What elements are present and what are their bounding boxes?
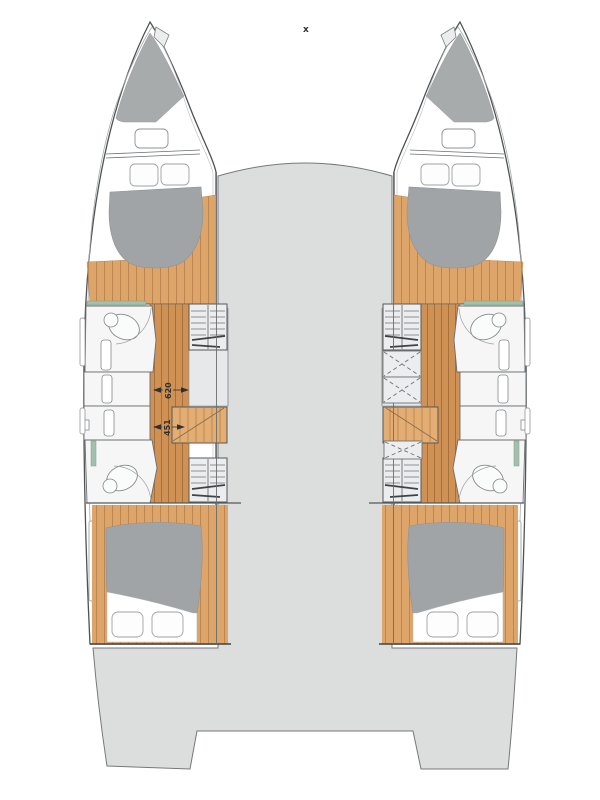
floorplan-svg: 620 451 x: [0, 0, 600, 800]
mast-marker: x: [303, 25, 309, 35]
dimension-451-label: 451: [163, 419, 172, 436]
floorplan-canvas: 620 451 x: [0, 0, 600, 800]
dimension-620-label: 620: [164, 382, 173, 399]
